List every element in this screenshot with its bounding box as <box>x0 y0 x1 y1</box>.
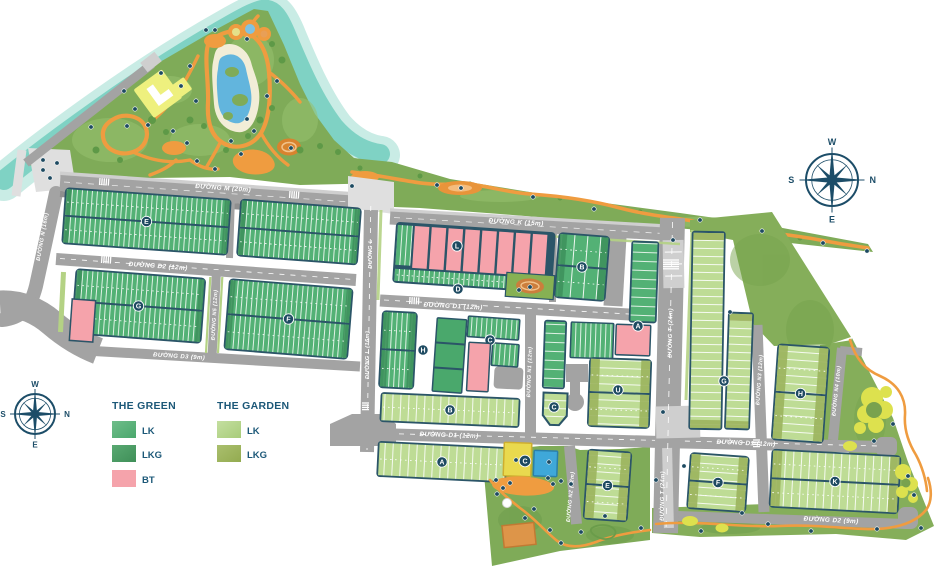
svg-text:B: B <box>447 407 452 414</box>
svg-text:LKG: LKG <box>247 450 267 461</box>
svg-text:LK: LK <box>247 426 260 437</box>
svg-text:D: D <box>455 286 460 293</box>
svg-text:LK: LK <box>142 426 155 437</box>
svg-text:LKG: LKG <box>142 450 162 461</box>
svg-text:THE GARDEN: THE GARDEN <box>217 400 289 412</box>
svg-text:E: E <box>32 440 38 449</box>
svg-text:H: H <box>798 391 804 398</box>
svg-text:K: K <box>832 479 837 486</box>
svg-text:A: A <box>439 459 444 466</box>
svg-text:E: E <box>605 483 610 490</box>
svg-text:H: H <box>420 347 425 354</box>
svg-text:U: U <box>615 387 620 394</box>
svg-text:E: E <box>829 214 835 224</box>
svg-text:S: S <box>788 175 794 185</box>
svg-text:N: N <box>64 410 70 419</box>
svg-text:B: B <box>579 264 585 271</box>
svg-text:THE GREEN: THE GREEN <box>112 400 176 412</box>
svg-text:C: C <box>551 404 556 411</box>
svg-text:S: S <box>0 410 6 419</box>
svg-text:BT: BT <box>142 475 155 486</box>
svg-text:ĐƯỜNG L (16m): ĐƯỜNG L (16m) <box>363 331 371 379</box>
svg-text:W: W <box>31 380 39 389</box>
svg-text:G: G <box>721 378 727 385</box>
svg-text:E: E <box>144 219 149 226</box>
svg-text:L: L <box>455 243 460 250</box>
svg-text:N: N <box>869 175 876 185</box>
svg-text:C: C <box>522 458 527 465</box>
svg-text:A: A <box>635 323 640 330</box>
svg-text:W: W <box>828 137 837 147</box>
svg-text:ĐƯỜNG L: ĐƯỜNG L <box>366 239 374 269</box>
